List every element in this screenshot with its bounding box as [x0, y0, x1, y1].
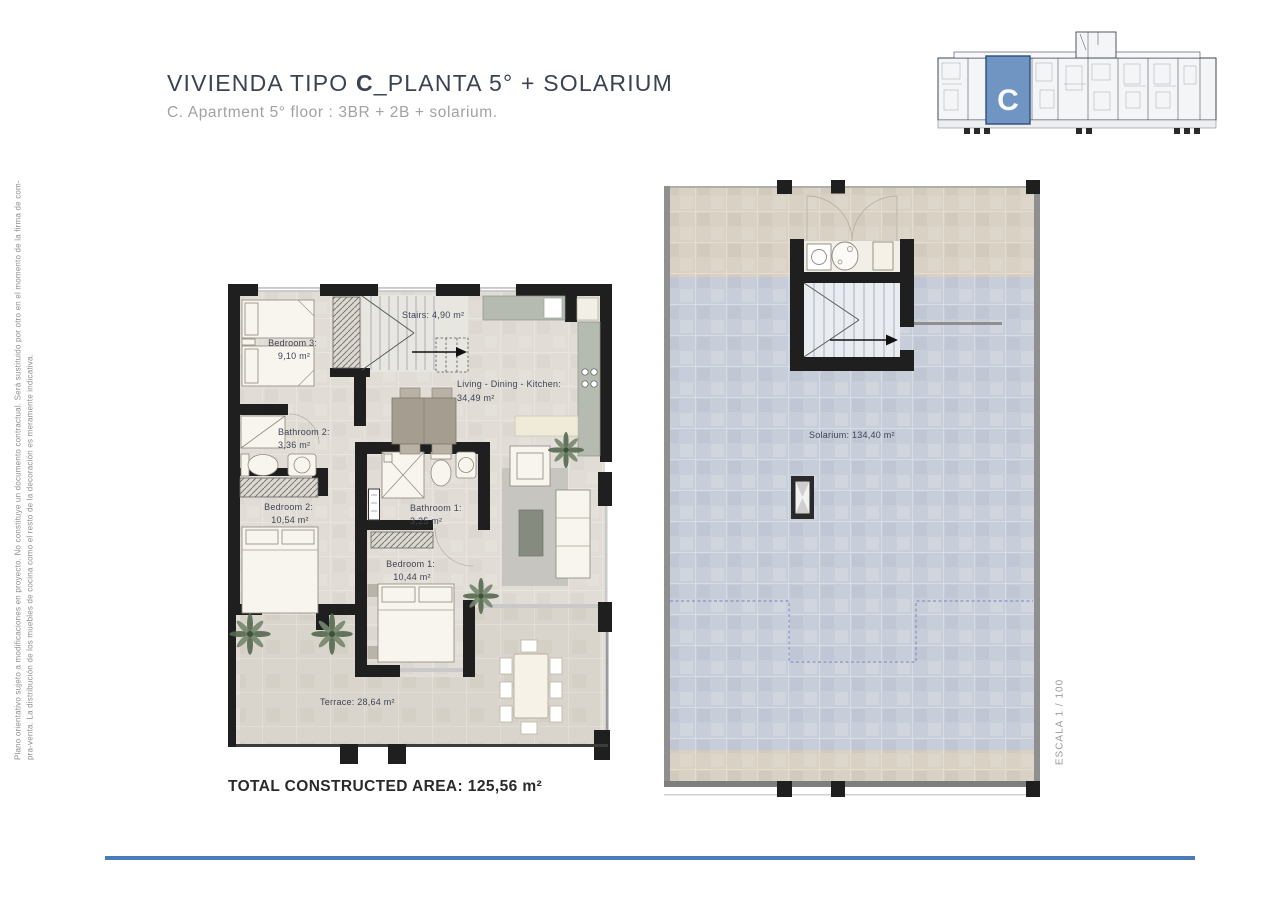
page-subtitle: C. Apartment 5° floor : 3BR + 2B + solar…: [167, 104, 673, 122]
building-pillars: [964, 128, 1200, 134]
solarium-lower-deck: [670, 750, 1034, 781]
title-prefix: VIVIENDA TIPO: [167, 70, 356, 96]
title-suffix: _PLANTA 5° + SOLARIUM: [374, 70, 673, 96]
solarium-floor-plan: Solarium: 134,40 m²: [664, 180, 1040, 802]
shower-icon: [382, 452, 424, 498]
title-unit-letter: C: [356, 70, 374, 96]
room-label-stairs: Stairs: 4,90 m²: [402, 310, 464, 320]
page-title: VIVIENDA TIPO C_PLANTA 5° + SOLARIUM: [167, 70, 673, 97]
single-bed-icon: [242, 300, 314, 338]
disclaimer-note: Plano orientativo sujeto a modificacione…: [13, 180, 38, 760]
wardrobe-icon: [240, 478, 318, 497]
title-block: VIVIENDA TIPO C_PLANTA 5° + SOLARIUM C. …: [167, 70, 673, 122]
unit-c-letter: C: [997, 84, 1019, 117]
wardrobe-icon: [371, 532, 433, 548]
divider-line: [105, 856, 1195, 860]
landing-rail: [914, 322, 1002, 325]
double-bed-icon: [368, 584, 455, 662]
sink-icon: [288, 454, 316, 476]
skylight-icon: [791, 476, 814, 519]
appliance-icon: [873, 242, 893, 270]
solarium-label: Solarium: 134,40 m²: [809, 430, 895, 440]
dining-table-icon: [392, 388, 456, 454]
scale-note: ESCALA 1 / 100: [1055, 679, 1066, 765]
unit-c-highlight: C: [986, 56, 1030, 124]
wardrobe-icon: [333, 297, 360, 368]
building-outline: [938, 32, 1216, 134]
disclaimer-line-1: Plano orientativo sujeto a modificacione…: [14, 180, 23, 760]
washing-machine-icon: [807, 244, 831, 270]
armchair-icon: [510, 446, 550, 486]
sofa-icon: [556, 490, 590, 578]
sink-icon: [456, 452, 476, 478]
toilet-icon: [241, 454, 278, 476]
room-label-terrace: Terrace: 28,64 m²: [320, 697, 395, 707]
stairwell-floor: [362, 295, 468, 372]
total-constructed-area: TOTAL CONSTRUCTED AREA: 125,56 m²: [228, 778, 542, 796]
basin-icon: [832, 242, 858, 270]
plan-sheet: VIVIENDA TIPO C_PLANTA 5° + SOLARIUM C. …: [0, 0, 1280, 908]
disclaimer-line-2: pra-venta. La distribución de los mueble…: [26, 354, 35, 760]
apartment-floor-plan: Bedroom 3: 9,10 m² Stairs: 4,90 m² Livin…: [228, 284, 612, 766]
toilet-icon: [431, 452, 451, 486]
coffee-table-icon: [519, 510, 543, 556]
double-bed-icon: [242, 527, 318, 613]
shaft: [369, 489, 380, 520]
nightstand-icon: [242, 339, 255, 345]
key-plan: C: [928, 10, 1228, 142]
roof-stairs-icon: [804, 283, 900, 357]
